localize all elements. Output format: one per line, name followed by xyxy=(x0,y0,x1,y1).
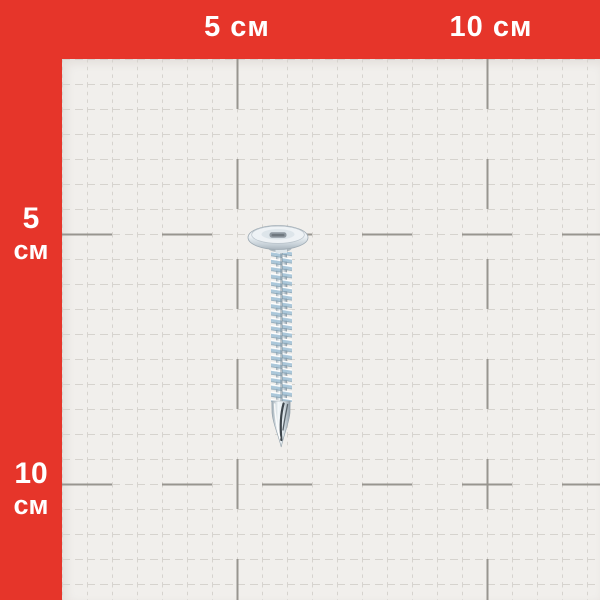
measurement-grid xyxy=(62,59,600,600)
screw-image xyxy=(240,220,324,456)
grid-paper xyxy=(62,59,600,600)
screw-shank xyxy=(271,251,292,403)
ruler-label-left-10cm: 10 см xyxy=(0,459,62,519)
ruler-label-left-10cm-number: 10 xyxy=(0,459,62,489)
measurement-board: 5 см 10 см 5 см 10 см xyxy=(0,0,600,600)
head-phillips-recess-slot xyxy=(272,234,285,236)
screw-drill-tip xyxy=(272,401,290,447)
ruler-label-top-10cm: 10 см xyxy=(450,0,533,55)
ruler-label-top-5cm: 5 см xyxy=(204,0,270,55)
ruler-label-left-5cm-number: 5 xyxy=(0,204,62,234)
screw-thread-root-shadow xyxy=(280,253,283,402)
ruler-label-left-5cm: 5 см xyxy=(0,204,62,264)
minor-grid-fill xyxy=(62,59,600,600)
ruler-label-left-10cm-unit: см xyxy=(0,492,62,519)
screw-head xyxy=(248,226,308,254)
ruler-label-left-5cm-unit: см xyxy=(0,237,62,264)
